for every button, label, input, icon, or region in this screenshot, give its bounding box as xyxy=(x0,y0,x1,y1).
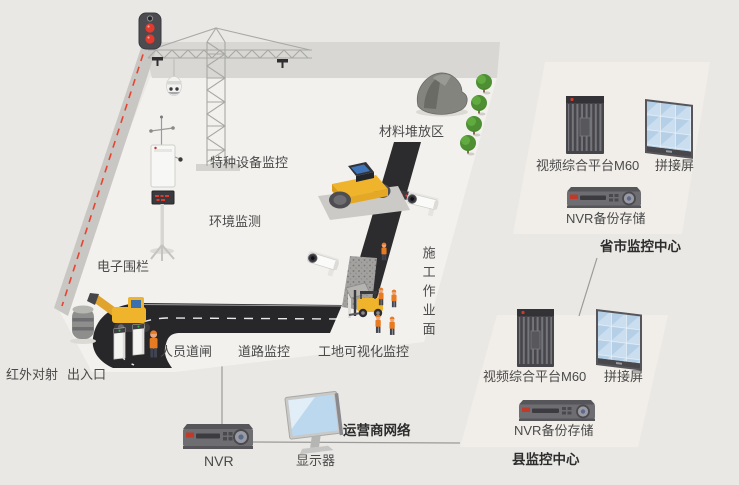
label-work-surface: 施工作业面 xyxy=(420,246,436,341)
label-county-title: 县监控中心 xyxy=(512,452,580,468)
label-province-platform: 视频综合平台M60 xyxy=(536,158,639,174)
turnstile-icon xyxy=(133,324,144,355)
label-electronic-fence: 电子围栏 xyxy=(97,259,149,275)
label-material-area: 材料堆放区 xyxy=(379,124,444,140)
label-personnel-gate: 人员道闸 xyxy=(160,344,212,360)
label-province-video-wall: 拼接屏 xyxy=(655,158,694,174)
video-wall-icon xyxy=(645,99,693,159)
nvr-backup-icon xyxy=(519,400,595,421)
alarm-light-icon xyxy=(139,13,161,49)
label-infrared: 红外对射 xyxy=(6,367,58,383)
label-site-visual: 工地可视化监控 xyxy=(318,344,409,360)
label-county-platform: 视频综合平台M60 xyxy=(483,369,586,385)
label-nvr: NVR xyxy=(204,453,234,470)
label-province-title: 省市监控中心 xyxy=(600,239,681,255)
nvr-backup-icon xyxy=(567,187,641,208)
label-special-equipment: 特种设备监控 xyxy=(210,155,288,171)
m60-platform-icon xyxy=(517,309,554,367)
label-entrance: 出入口 xyxy=(67,367,106,383)
nvr-monitor-network-line xyxy=(252,442,460,443)
video-wall-icon xyxy=(596,309,642,371)
label-county-video-wall: 拼接屏 xyxy=(604,369,643,385)
construction-site-monitoring-diagram: 特种设备监控 环境监测 电子围栏 材料堆放区 施工作业面 红外对射 出入口 人员… xyxy=(0,0,739,485)
label-road-monitor: 道路监控 xyxy=(238,344,290,360)
label-county-nvr-backup: NVR备份存储 xyxy=(514,423,593,439)
label-monitor: 显示器 xyxy=(296,453,335,469)
nvr-icon xyxy=(183,424,253,449)
label-environment: 环境监测 xyxy=(209,214,261,230)
monitor-icon xyxy=(285,391,345,455)
province-county-line xyxy=(579,258,597,316)
label-province-nvr-backup: NVR备份存储 xyxy=(566,211,645,227)
m60-platform-icon xyxy=(566,96,604,154)
label-carrier-network: 运营商网络 xyxy=(343,423,411,439)
turnstile-icon xyxy=(114,328,125,359)
